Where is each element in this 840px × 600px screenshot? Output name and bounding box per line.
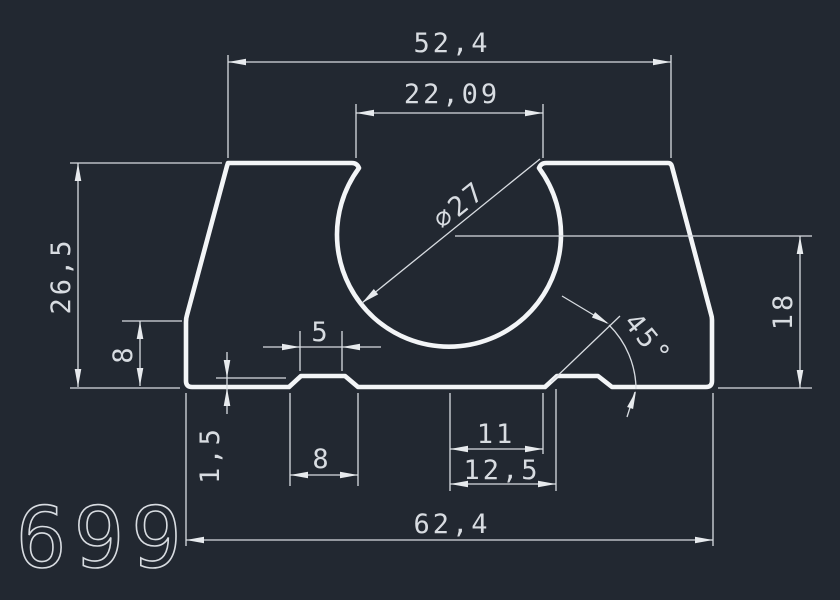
dim-label-bottom-width: 62,4	[413, 509, 490, 540]
dim-label-overall-height: 26,5	[46, 237, 77, 314]
dim-label-left-step-height: 8	[108, 344, 139, 363]
dim-label-slot-width-outer: 12,5	[463, 455, 540, 486]
dim-label-boss-height: 1,5	[195, 426, 226, 484]
dim-label-opening-width: 22,09	[404, 79, 500, 110]
dim-label-boss-top-width: 5	[311, 317, 330, 348]
cad-viewport: 52,4 22,09 ∅27 26,5 8 5 1,5 8	[0, 0, 840, 600]
dim-label-top-width: 52,4	[413, 28, 490, 59]
dim-label-right-height: 18	[768, 292, 799, 331]
dim-label-slot-width-inner: 11	[477, 419, 516, 450]
part-number: 699	[16, 489, 189, 587]
dim-label-boss-base-width: 8	[312, 444, 331, 475]
cad-canvas: 52,4 22,09 ∅27 26,5 8 5 1,5 8	[0, 0, 840, 600]
